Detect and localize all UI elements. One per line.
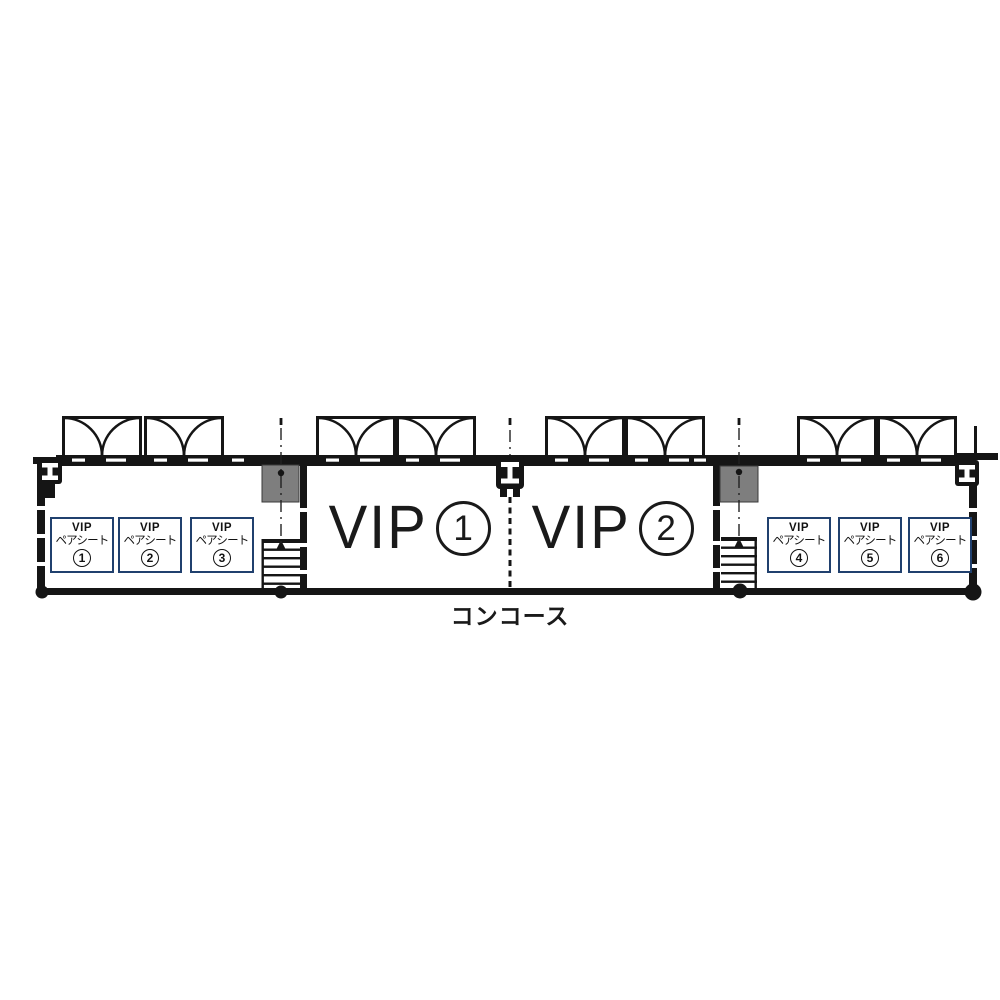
bottom-wall [40, 588, 976, 595]
centerline-center [509, 418, 512, 455]
seat-title: VIP [212, 523, 232, 535]
room-vip-2[interactable]: VIP 2 [510, 468, 713, 586]
stairs-icon [262, 539, 301, 589]
room-number-circle: 2 [639, 501, 694, 556]
seat-subtitle: ペアシート [55, 536, 108, 548]
floor-plan-canvas: VIP 1 VIP 2 VIP ペアシート 1 VIP ペアシート 2 VIP … [0, 0, 1000, 1000]
seat-number: 5 [867, 552, 874, 564]
seat-number-circle: 5 [861, 549, 879, 567]
seat-number-circle: 6 [931, 549, 949, 567]
left-shaft-wall [300, 466, 307, 588]
steel-column-icon [955, 460, 979, 486]
concourse-label: コンコース [410, 597, 610, 631]
seat-number-circle: 3 [213, 549, 231, 567]
seat-subtitle: ペアシート [843, 536, 896, 548]
seat-title: VIP [72, 523, 92, 535]
seat-title: VIP [930, 523, 950, 535]
seat-number-circle: 4 [790, 549, 808, 567]
room-name: VIP [532, 497, 631, 558]
seat-title: VIP [140, 523, 160, 535]
seat-subtitle: ペアシート [123, 536, 176, 548]
vip-pair-seat-5[interactable]: VIP ペアシート 5 [838, 517, 902, 573]
seat-number: 3 [219, 552, 226, 564]
room-number-circle: 1 [436, 501, 491, 556]
vip-pair-seat-4[interactable]: VIP ペアシート 4 [767, 517, 831, 573]
seat-subtitle: ペアシート [772, 536, 825, 548]
vip-pair-seat-3[interactable]: VIP ペアシート 3 [190, 517, 254, 573]
seat-title: VIP [789, 523, 809, 535]
vip-pair-seat-1[interactable]: VIP ペアシート 1 [50, 517, 114, 573]
vip-pair-seat-6[interactable]: VIP ペアシート 6 [908, 517, 972, 573]
seat-subtitle: ペアシート [913, 536, 966, 548]
seat-number-circle: 2 [141, 549, 159, 567]
seat-number: 1 [79, 552, 86, 564]
steel-column-icon [38, 458, 62, 484]
room-number: 2 [656, 511, 675, 546]
seat-title: VIP [860, 523, 880, 535]
room-number: 1 [453, 511, 472, 546]
seat-subtitle: ペアシート [195, 536, 248, 548]
stairs-icon [721, 537, 757, 589]
seat-number: 4 [796, 552, 803, 564]
seat-number: 2 [147, 552, 154, 564]
seat-number: 6 [937, 552, 944, 564]
seat-number-circle: 1 [73, 549, 91, 567]
room-name: VIP [329, 497, 428, 558]
right-shaft-wall [713, 466, 720, 588]
room-vip-1[interactable]: VIP 1 [307, 468, 510, 586]
vip-pair-seat-2[interactable]: VIP ペアシート 2 [118, 517, 182, 573]
